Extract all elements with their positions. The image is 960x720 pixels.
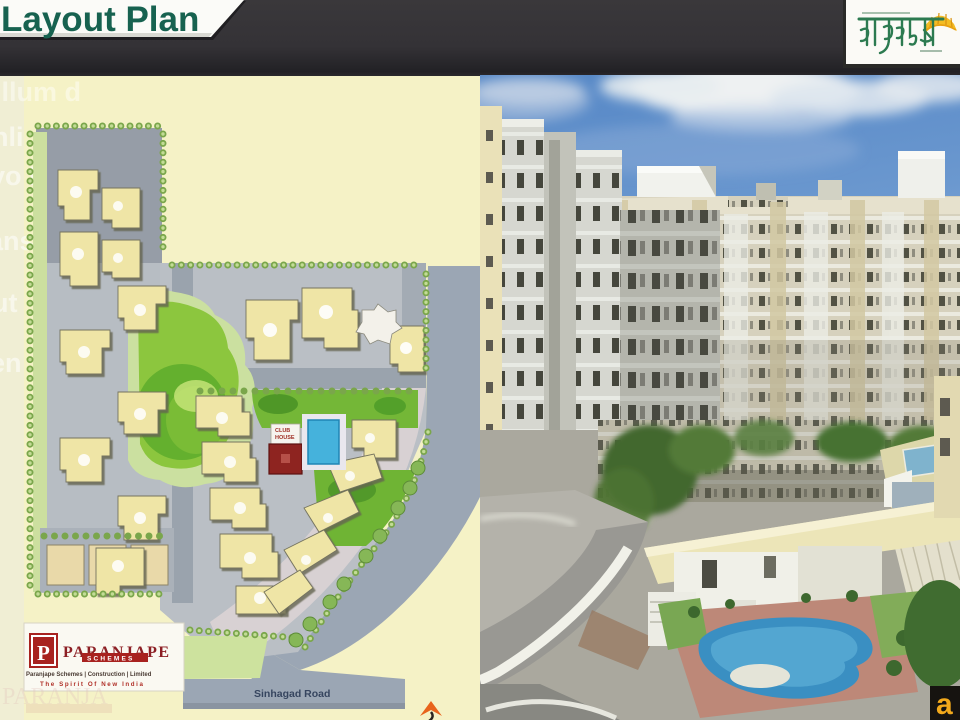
svg-text:P: P (37, 641, 50, 665)
svg-text:ut: ut (0, 288, 17, 318)
svg-text:Sinhagad Road: Sinhagad Road (254, 688, 330, 700)
svg-text:a: a (936, 688, 953, 720)
svg-text:HOUSE: HOUSE (275, 435, 295, 441)
svg-text:illum d: illum d (0, 77, 81, 107)
svg-text:hli: hli (0, 122, 24, 152)
svg-text:en: en (0, 348, 22, 378)
svg-text:SCHEMES: SCHEMES (87, 656, 135, 663)
svg-text:Paranjape Schemes | Constructi: Paranjape Schemes | Construction | Limit… (26, 672, 152, 678)
svg-text:CLUB: CLUB (275, 428, 290, 434)
svg-text:Layout Plan: Layout Plan (1, 0, 199, 39)
